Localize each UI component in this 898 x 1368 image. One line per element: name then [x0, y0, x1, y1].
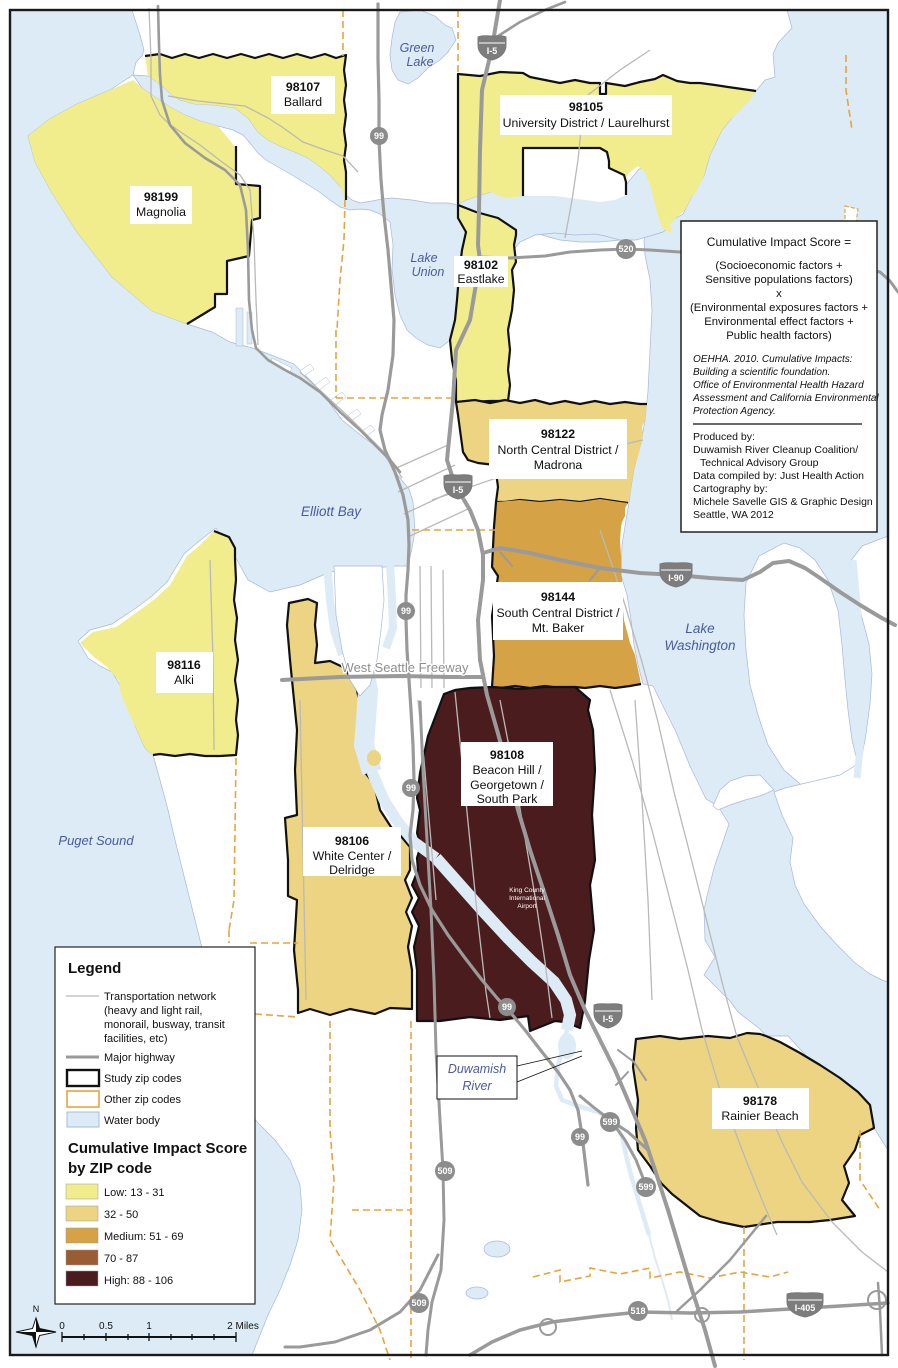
svg-text:Airport: Airport: [517, 903, 536, 910]
svg-text:Elliott Bay: Elliott Bay: [301, 504, 362, 519]
svg-text:509: 509: [411, 1298, 426, 1308]
svg-text:I-5: I-5: [487, 46, 498, 56]
svg-text:98108: 98108: [490, 748, 524, 762]
svg-text:Beacon Hill /: Beacon Hill /: [472, 763, 542, 777]
svg-text:Washington: Washington: [664, 638, 735, 653]
svg-text:98106: 98106: [335, 834, 369, 848]
svg-text:monorail, busway, transit: monorail, busway, transit: [104, 1019, 225, 1031]
svg-text:1: 1: [146, 1321, 152, 1332]
svg-text:Protection Agency.: Protection Agency.: [693, 406, 776, 417]
svg-text:by ZIP code: by ZIP code: [68, 1160, 152, 1177]
svg-text:x: x: [776, 288, 782, 300]
svg-text:Water body: Water body: [104, 1115, 160, 1127]
svg-text:98144: 98144: [541, 590, 575, 604]
svg-text:32 - 50: 32 - 50: [104, 1209, 138, 1221]
svg-text:Magnolia: Magnolia: [136, 205, 186, 219]
svg-text:Duwamish River Cleanup Coaliti: Duwamish River Cleanup Coalition/: [693, 444, 858, 456]
svg-text:98102: 98102: [464, 258, 498, 272]
svg-text:Puget Sound: Puget Sound: [58, 833, 134, 848]
svg-text:High: 88 - 106: High: 88 - 106: [104, 1275, 173, 1287]
svg-text:Transportation network: Transportation network: [104, 991, 217, 1003]
svg-text:Technical Advisory Group: Technical Advisory Group: [700, 457, 819, 469]
svg-text:Produced by:: Produced by:: [693, 431, 755, 443]
svg-text:Lake: Lake: [406, 55, 433, 69]
svg-text:West Seattle Freeway: West Seattle Freeway: [342, 660, 469, 675]
svg-text:Mt. Baker: Mt. Baker: [532, 621, 585, 635]
svg-text:Eastlake: Eastlake: [457, 272, 504, 286]
svg-text:Other zip codes: Other zip codes: [104, 1094, 182, 1106]
svg-text:North Central District /: North Central District /: [498, 443, 620, 457]
svg-text:Alki: Alki: [174, 673, 194, 687]
svg-text:99: 99: [502, 1002, 512, 1012]
svg-text:98116: 98116: [167, 658, 201, 672]
svg-text:Data compiled by: Just Health: Data compiled by: Just Health Action: [693, 470, 864, 482]
svg-text:Green: Green: [400, 41, 435, 55]
svg-text:(heavy and light rail,: (heavy and light rail,: [104, 1005, 202, 1017]
svg-text:Cartography by:: Cartography by:: [693, 483, 768, 495]
svg-text:Delridge: Delridge: [329, 863, 375, 877]
svg-text:99: 99: [374, 131, 384, 141]
svg-text:2 Miles: 2 Miles: [227, 1321, 259, 1332]
svg-text:Duwamish: Duwamish: [448, 1062, 506, 1076]
svg-text:98178: 98178: [743, 1094, 777, 1108]
svg-text:98105: 98105: [569, 100, 603, 114]
svg-text:99: 99: [575, 1132, 585, 1142]
svg-text:Assessment and California Envi: Assessment and California Environmental: [692, 393, 879, 404]
svg-text:Major highway: Major highway: [104, 1052, 175, 1064]
svg-text:OEHHA. 2010. Cumulative Impact: OEHHA. 2010. Cumulative Impacts:: [693, 354, 853, 365]
svg-text:599: 599: [602, 1117, 617, 1127]
svg-text:99: 99: [406, 783, 416, 793]
svg-text:Madrona: Madrona: [534, 458, 583, 472]
svg-text:Legend: Legend: [68, 960, 121, 977]
svg-text:Cumulative Impact Score: Cumulative Impact Score: [68, 1140, 247, 1157]
svg-text:White Center /: White Center /: [313, 849, 392, 863]
svg-text:facilities, etc): facilities, etc): [104, 1033, 168, 1045]
svg-text:Building a scientific foundati: Building a scientific foundation.: [693, 367, 830, 378]
svg-text:I-405: I-405: [795, 1303, 816, 1313]
svg-text:518: 518: [630, 1306, 645, 1316]
svg-text:South Park: South Park: [477, 792, 539, 806]
svg-text:(Socioeconomic factors +: (Socioeconomic factors +: [715, 260, 843, 272]
svg-text:Public health factors): Public health factors): [726, 330, 832, 342]
svg-text:Lake: Lake: [685, 621, 714, 636]
svg-text:98107: 98107: [286, 80, 320, 94]
svg-text:Sensitive populations factors): Sensitive populations factors): [705, 274, 853, 286]
svg-text:Environmental effect factors +: Environmental effect factors +: [704, 316, 854, 328]
svg-text:Georgetown /: Georgetown /: [470, 778, 544, 792]
svg-text:99: 99: [401, 606, 411, 616]
svg-text:King County: King County: [509, 887, 545, 894]
svg-text:International: International: [509, 895, 545, 902]
svg-text:Office of Environmental Health: Office of Environmental Health Hazard: [693, 380, 864, 391]
svg-text:I-5: I-5: [603, 1014, 614, 1024]
svg-text:70 - 87: 70 - 87: [104, 1253, 138, 1265]
svg-text:Low: 13 - 31: Low: 13 - 31: [104, 1187, 165, 1199]
svg-text:98199: 98199: [144, 190, 178, 204]
svg-text:Union: Union: [412, 265, 445, 279]
svg-text:Rainier Beach: Rainier Beach: [721, 1109, 798, 1123]
svg-text:University District / Laurelhu: University District / Laurelhurst: [503, 116, 670, 130]
svg-text:N: N: [33, 1304, 40, 1314]
svg-text:Study zip codes: Study zip codes: [104, 1073, 182, 1085]
svg-text:98122: 98122: [541, 427, 575, 441]
svg-text:0: 0: [59, 1321, 65, 1332]
svg-text:509: 509: [437, 1166, 452, 1176]
svg-text:South Central District /: South Central District /: [496, 606, 620, 620]
svg-text:Lake: Lake: [410, 251, 437, 265]
svg-text:520: 520: [618, 244, 633, 254]
svg-text:Cumulative Impact Score =: Cumulative Impact Score =: [707, 235, 851, 249]
svg-text:Ballard: Ballard: [284, 95, 322, 109]
svg-text:0.5: 0.5: [99, 1321, 113, 1332]
svg-text:I-90: I-90: [668, 573, 684, 583]
svg-text:Michele Savelle GIS & Graphic: Michele Savelle GIS & Graphic Design: [693, 496, 873, 508]
svg-text:599: 599: [638, 1182, 653, 1192]
svg-text:River: River: [462, 1079, 492, 1093]
svg-text:I-5: I-5: [453, 485, 464, 495]
svg-text:(Environmental exposures facto: (Environmental exposures factors +: [690, 302, 868, 314]
svg-text:Medium: 51 - 69: Medium: 51 - 69: [104, 1231, 183, 1243]
svg-text:Seattle, WA 2012: Seattle, WA 2012: [693, 509, 774, 521]
